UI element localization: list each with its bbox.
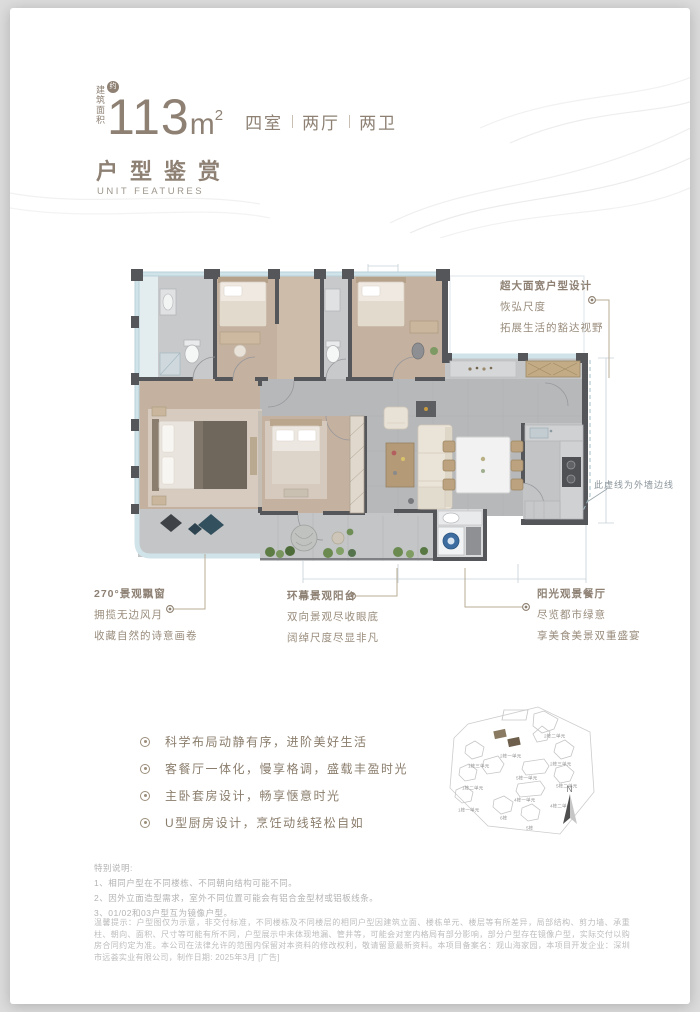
disclaimer-text: 温馨提示：户型图仅为示意，非交付标准，不同楼栋及不同楼层的相同户型因建筑立面、楼…: [94, 917, 630, 963]
room-count-bedrooms: 四室: [245, 109, 283, 134]
bullet-icon: [140, 791, 150, 801]
callout-title: 环幕景观阳台: [287, 586, 379, 607]
special-notes: 特别说明: 1、相同户型在不同楼栋、不同朝向结构可能不同。 2、因外立面造型需求…: [94, 861, 378, 921]
pillow-icon: [188, 523, 202, 535]
shoe-cabinet: [526, 361, 580, 377]
feature-item: 客餐厅一体化，慢享格调，盛载丰盈时光: [140, 755, 408, 782]
leader-line: [174, 300, 609, 609]
callout-title: 阳光观景餐厅: [537, 584, 641, 605]
siteplan-label: 2栋二单元: [544, 732, 565, 739]
siteplan-label: 1栋二单元: [462, 784, 483, 791]
garden-balcony: [265, 525, 428, 558]
sofa-icon: [418, 425, 452, 509]
bathroom-1: [160, 289, 200, 375]
room-count-bathrooms: 两卫: [359, 109, 397, 134]
siteplan-label: 6栋: [500, 814, 507, 821]
siteplan-label: 1栋三单元: [468, 762, 489, 769]
note-line: 1、相同户型在不同楼栋、不同朝向结构可能不同。: [94, 876, 378, 891]
washing-machine-icon: [438, 527, 464, 555]
plants-icon: [265, 546, 428, 558]
entry-console: [450, 361, 580, 377]
tile-grid: [278, 379, 585, 561]
wardrobe: [350, 416, 364, 513]
siteplan-label: 4栋一单元: [514, 796, 535, 803]
exterior-dashed-line: [582, 360, 590, 513]
living-room: [384, 401, 452, 509]
area-value: 113: [107, 89, 190, 145]
coffee-table-icon: [386, 443, 414, 487]
bed-icon: [220, 282, 266, 326]
flyer-page: 建筑面积 约 113m2 四室 两厅 两卫 户型鉴赏 UNIT FEATURES: [10, 8, 690, 1004]
note-line: 2、因外立面造型需求，室外不同位置可能会有铝合金型材或铝板线条。: [94, 891, 378, 906]
feature-item: 科学布局动静有序，进阶美好生活: [140, 728, 408, 755]
callout-title: 超大面宽户型设计: [500, 276, 604, 297]
side-table: [416, 401, 436, 417]
room-summary: 四室 两厅 两卫: [245, 109, 397, 134]
siteplan-label: 2栋一单元: [500, 752, 521, 759]
area-figure: 113m2: [107, 94, 223, 142]
siteplan-label: 2栋三单元: [550, 760, 571, 767]
header: 建筑面积 约 113m2 四室 两厅 两卫: [94, 86, 397, 142]
bathroom-2: [325, 289, 340, 363]
pillow-icon: [198, 514, 224, 535]
callout-bay-window: 270°景观飘窗 拥揽无边风月 收藏自然的诗意画卷: [94, 584, 198, 647]
master-bedroom: [148, 407, 262, 535]
section-subtitle: UNIT FEATURES: [97, 186, 204, 197]
sink-icon: [530, 428, 548, 438]
feature-item: 主卧套房设计，畅享惬意时光: [140, 782, 408, 809]
sink-icon: [443, 513, 459, 523]
area-superscript: 2: [215, 107, 223, 124]
bedroom-4: [356, 277, 438, 359]
siteplan-label: 1栋一单元: [458, 806, 479, 813]
north-arrow-icon: N: [560, 784, 580, 831]
laundry: [438, 511, 482, 555]
area-unit: m: [190, 108, 215, 141]
siteplan-label: 5栋: [526, 824, 533, 831]
stone-feature: [291, 525, 317, 551]
toilet-icon: [184, 340, 200, 346]
kitchen: [525, 425, 583, 519]
callout-balcony: 环幕景观阳台 双向景观尽收眼底 阔绰尺度尽显非凡: [287, 586, 379, 649]
door-arcs: [193, 357, 568, 540]
callout-marker-icon: [167, 297, 596, 613]
notes-title: 特别说明:: [94, 861, 378, 876]
bed-icon: [272, 426, 320, 484]
siteplan-label: 5栋一单元: [516, 774, 537, 781]
approx-badge: 约: [107, 81, 119, 93]
divider: [292, 115, 293, 128]
window-glass-lines: [135, 272, 445, 511]
divider: [349, 115, 350, 128]
dining-area: [443, 437, 523, 493]
section-title: 户型鉴赏: [96, 154, 232, 186]
toilet-icon: [326, 341, 340, 347]
callout-title: 270°景观飘窗: [94, 584, 198, 605]
armchair-icon: [384, 407, 408, 429]
feature-item: U型厨房设计，烹饪动线轻松自如: [140, 809, 408, 836]
area-label-vertical: 建筑面积: [94, 85, 105, 135]
callout-dining: 阳光观景餐厅 尽览都市绿意 享美食美景双重盛宴: [537, 584, 641, 647]
bullet-icon: [140, 737, 150, 747]
plant-icon: [430, 347, 438, 355]
feature-list: 科学布局动静有序，进阶美好生活 客餐厅一体化，慢享格调，盛载丰盈时光 主卧套房设…: [140, 728, 408, 836]
siteplan: 2栋二单元 2栋一单元 2栋三单元 1栋三单元 5栋一单元 5栋二单元 1栋二单…: [438, 704, 613, 849]
bullet-icon: [140, 818, 150, 828]
toilet-icon: [412, 343, 424, 359]
bed-icon: [358, 282, 404, 326]
bed-icon: [159, 421, 247, 489]
dining-table-icon: [456, 437, 510, 493]
bedroom-2: [265, 419, 327, 499]
room-count-livingrooms: 两厅: [302, 109, 340, 134]
stove-icon: [562, 457, 581, 487]
bullet-icon: [140, 764, 150, 774]
pillow-icon: [160, 514, 182, 532]
bedroom-3: [218, 277, 268, 357]
wall-note: 此虚线为外墙边线: [594, 478, 674, 491]
floor-lamp-icon: [408, 498, 414, 504]
callout-top-right: 超大面宽户型设计 恢弘尺度 拓展生活的豁达视野: [500, 276, 604, 339]
